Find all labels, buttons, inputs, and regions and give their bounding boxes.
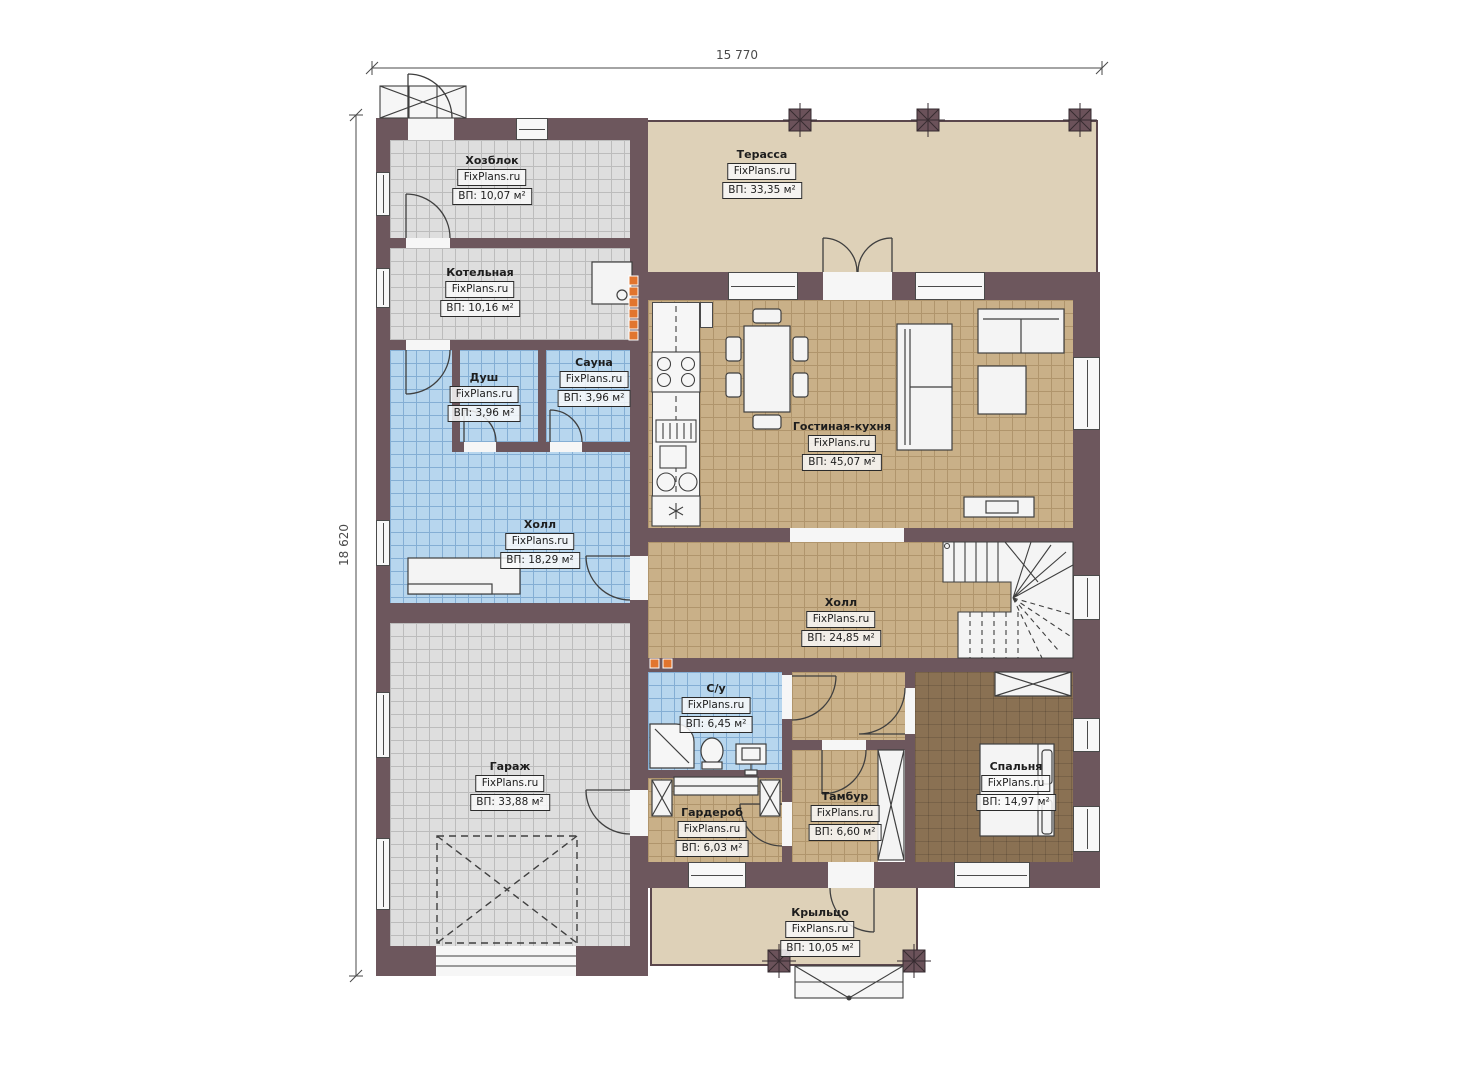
room-name: Терасса (737, 148, 788, 161)
dimension-height: 18 620 (337, 524, 351, 566)
floor-corridor (792, 672, 905, 740)
room-area: ВП: 6,45 м² (680, 716, 753, 733)
window (376, 692, 390, 758)
room-label-tambur: Тамбур FixPlans.ru ВП: 6,60 м² (809, 790, 882, 841)
room-area: ВП: 45,07 м² (802, 454, 882, 471)
room-label-dush: Душ FixPlans.ru ВП: 3,96 м² (448, 371, 521, 422)
room-name: Холл (524, 518, 556, 531)
room-area: ВП: 33,35 м² (722, 182, 802, 199)
room-label-garazh: Гараж FixPlans.ru ВП: 33,88 м² (470, 760, 550, 811)
room-name: Холл (825, 596, 857, 609)
window (376, 838, 390, 910)
room-name: Гардероб (681, 806, 743, 819)
room-label-gostinaya: Гостиная-кухня FixPlans.ru ВП: 45,07 м² (793, 420, 891, 471)
room-label-su: С/у FixPlans.ru ВП: 6,45 м² (680, 682, 753, 733)
room-label-sauna: Сауна FixPlans.ru ВП: 3,96 м² (558, 356, 631, 407)
floor-plan: 15 770 18 620 Хозблок FixPlans.ru ВП: 10… (0, 0, 1473, 1080)
window (1073, 357, 1100, 430)
room-label-hozblok: Хозблок FixPlans.ru ВП: 10,07 м² (452, 154, 532, 205)
watermark-badge: FixPlans.ru (811, 805, 880, 822)
room-area: ВП: 24,85 м² (801, 630, 881, 647)
room-name: Котельная (446, 266, 513, 279)
watermark-badge: FixPlans.ru (786, 921, 855, 938)
watermark-badge: FixPlans.ru (808, 435, 877, 452)
watermark-badge: FixPlans.ru (560, 371, 629, 388)
dimension-width: 15 770 (716, 48, 758, 62)
watermark-badge: FixPlans.ru (446, 281, 515, 298)
room-area: ВП: 3,96 м² (558, 390, 631, 407)
room-area: ВП: 6,03 м² (676, 840, 749, 857)
door-hozblok-exterior (408, 74, 452, 118)
window (376, 268, 390, 308)
entry-porch-top (380, 86, 466, 118)
room-area: ВП: 10,16 м² (440, 300, 520, 317)
room-area: ВП: 6,60 м² (809, 824, 882, 841)
room-label-holl-1: Холл FixPlans.ru ВП: 18,29 м² (500, 518, 580, 569)
room-label-holl-2: Холл FixPlans.ru ВП: 24,85 м² (801, 596, 881, 647)
room-name: Душ (470, 371, 499, 384)
room-label-terassa: Терасса FixPlans.ru ВП: 33,35 м² (722, 148, 802, 199)
floor-terrace (648, 120, 1098, 273)
watermark-badge: FixPlans.ru (678, 821, 747, 838)
watermark-badge: FixPlans.ru (476, 775, 545, 792)
watermark-badge: FixPlans.ru (728, 163, 797, 180)
floor-living-kitchen (648, 300, 1073, 528)
room-name: Хозблок (465, 154, 518, 167)
watermark-badge: FixPlans.ru (682, 697, 751, 714)
room-name: С/у (706, 682, 725, 695)
room-area: ВП: 3,96 м² (448, 405, 521, 422)
room-label-garderob: Гардероб FixPlans.ru ВП: 6,03 м² (676, 806, 749, 857)
watermark-badge: FixPlans.ru (807, 611, 876, 628)
entry-steps (795, 966, 903, 1000)
room-area: ВП: 18,29 м² (500, 552, 580, 569)
window (1073, 575, 1100, 620)
room-name: Крыльцо (791, 906, 849, 919)
watermark-badge: FixPlans.ru (506, 533, 575, 550)
window (376, 172, 390, 216)
room-area: ВП: 33,88 м² (470, 794, 550, 811)
room-label-spalnya: Спальня FixPlans.ru ВП: 14,97 м² (976, 760, 1056, 811)
watermark-badge: FixPlans.ru (450, 386, 519, 403)
watermark-badge: FixPlans.ru (982, 775, 1051, 792)
room-name: Спальня (990, 760, 1043, 773)
window (915, 272, 985, 300)
kitchen-counter-corner (700, 302, 713, 328)
window (728, 272, 798, 300)
room-label-kotelnaya: Котельная FixPlans.ru ВП: 10,16 м² (440, 266, 520, 317)
room-name: Тамбур (822, 790, 869, 803)
room-name: Сауна (575, 356, 613, 369)
window (688, 862, 746, 888)
kitchen-counter (652, 302, 700, 526)
window (954, 862, 1030, 888)
tambur-closet (878, 750, 904, 860)
window (516, 118, 548, 140)
room-label-krylco: Крыльцо FixPlans.ru ВП: 10,05 м² (780, 906, 860, 957)
room-area: ВП: 14,97 м² (976, 794, 1056, 811)
room-area: ВП: 10,05 м² (780, 940, 860, 957)
window (1073, 718, 1100, 752)
room-name: Гараж (490, 760, 531, 773)
window (1073, 806, 1100, 852)
watermark-badge: FixPlans.ru (458, 169, 527, 186)
window (376, 520, 390, 566)
room-name: Гостиная-кухня (793, 420, 891, 433)
room-area: ВП: 10,07 м² (452, 188, 532, 205)
